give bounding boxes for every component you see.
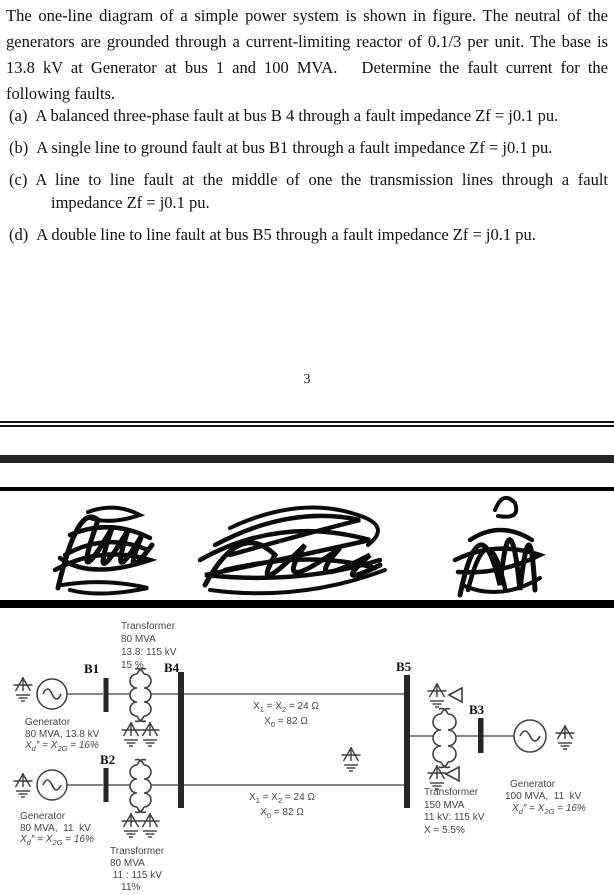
generator3-symbol: [514, 720, 546, 752]
transformer2-ground-icon-left: [122, 813, 141, 837]
generator2-symbol: [37, 770, 67, 800]
delta-winding-icon-bottom: [446, 767, 459, 781]
transformer3-symbol: [433, 709, 456, 768]
sine-wave-icon: [43, 780, 61, 790]
generator1-symbol: [37, 679, 67, 709]
bus-label-b5: B5: [396, 659, 411, 675]
generator3-ground-icon: [556, 725, 575, 749]
sine-wave-icon: [43, 689, 61, 699]
generator3-label: Generator 100 MVA, 11 kV Xd″ = X2G = 16%: [505, 779, 586, 818]
bus-b1-bar: [104, 678, 109, 712]
midline-ground-icon: [342, 747, 361, 771]
transformer2-symbol: [130, 760, 151, 813]
transformer2-ground-icon-right: [141, 813, 160, 837]
bus-b3-bar: [478, 718, 484, 753]
generator1-label: Generator 80 MVA, 13.8 kV Xd″ = X2G = 16…: [25, 717, 99, 755]
generator2-label: Generator 80 MVA, 11 kV Xd″ = X2G = 16%: [20, 811, 94, 849]
transformer3-ground-icon-bottom: [428, 765, 447, 789]
delta-winding-icon-top: [449, 688, 462, 702]
item-text: A line to line fault at the middle of on…: [35, 170, 608, 212]
generator1-ground-icon: [14, 677, 33, 701]
item-label: (d): [9, 225, 36, 244]
fault-item-c: (c)A line to line fault at the middle of…: [6, 168, 608, 214]
bus-label-b3: B3: [469, 702, 484, 718]
transformer3-ground-icon-top: [428, 683, 447, 707]
bus-b4-bar: [178, 672, 184, 808]
item-label: (a): [9, 106, 35, 125]
fault-list: (a)A balanced three-phase fault at bus B…: [6, 95, 608, 246]
one-line-diagram: B1 B4 B5 B2 B3 Transformer 80 MVA 13.8: …: [0, 608, 614, 895]
transformer1-ground-icon-left: [122, 722, 141, 746]
transformer3-label: Transformer 150 MVA 11 kV: 115 kV X = 5.…: [424, 787, 484, 837]
item-text: A double line to line fault at bus B5 th…: [36, 225, 536, 244]
item-label: (c): [9, 170, 35, 189]
document-page: The one-line diagram of a simple power s…: [0, 0, 614, 895]
redaction-scribble-1: [55, 508, 152, 594]
transformer2-label: Transformer 80 MVA 11 : 115 kV 11%: [110, 846, 164, 894]
divider-thin-double-bottom: [0, 425, 614, 427]
fault-item-a: (a)A balanced three-phase fault at bus B…: [6, 104, 608, 127]
problem-intro: The one-line diagram of a simple power s…: [6, 3, 608, 107]
bus-b5-bar: [404, 675, 410, 808]
item-text: A single line to ground fault at bus B1 …: [36, 138, 552, 157]
item-label: (b): [9, 138, 36, 157]
line1-impedance-label: X1 = X2 = 24 Ω X0 = 82 Ω: [230, 701, 342, 731]
fault-item-b: (b)A single line to ground fault at bus …: [6, 136, 608, 159]
bus-label-b1: B1: [84, 661, 99, 677]
fault-item-d: (d)A double line to line fault at bus B5…: [6, 223, 608, 246]
redaction-scribbles: [0, 490, 614, 602]
sine-wave-icon: [520, 731, 540, 741]
item-text: A balanced three-phase fault at bus B 4 …: [35, 106, 558, 125]
bus-label-b2: B2: [100, 752, 115, 768]
transformer1-ground-icon-right: [141, 722, 160, 746]
redaction-scribble-3: [455, 498, 540, 595]
line2-impedance-label: X1 = X2 = 24 Ω X0 = 82 Ω: [226, 792, 338, 822]
transformer1-symbol: [130, 669, 151, 722]
redaction-scribble-2: [200, 507, 385, 593]
generator2-ground-icon: [14, 773, 33, 797]
bus-b2-bar: [104, 768, 109, 802]
transformer1-label: Transformer 80 MVA 13.8: 115 kV 15 %: [121, 620, 176, 672]
divider-thick-gray: [0, 455, 614, 463]
page-number: 3: [0, 372, 614, 388]
divider-thin-double-top: [0, 421, 614, 423]
